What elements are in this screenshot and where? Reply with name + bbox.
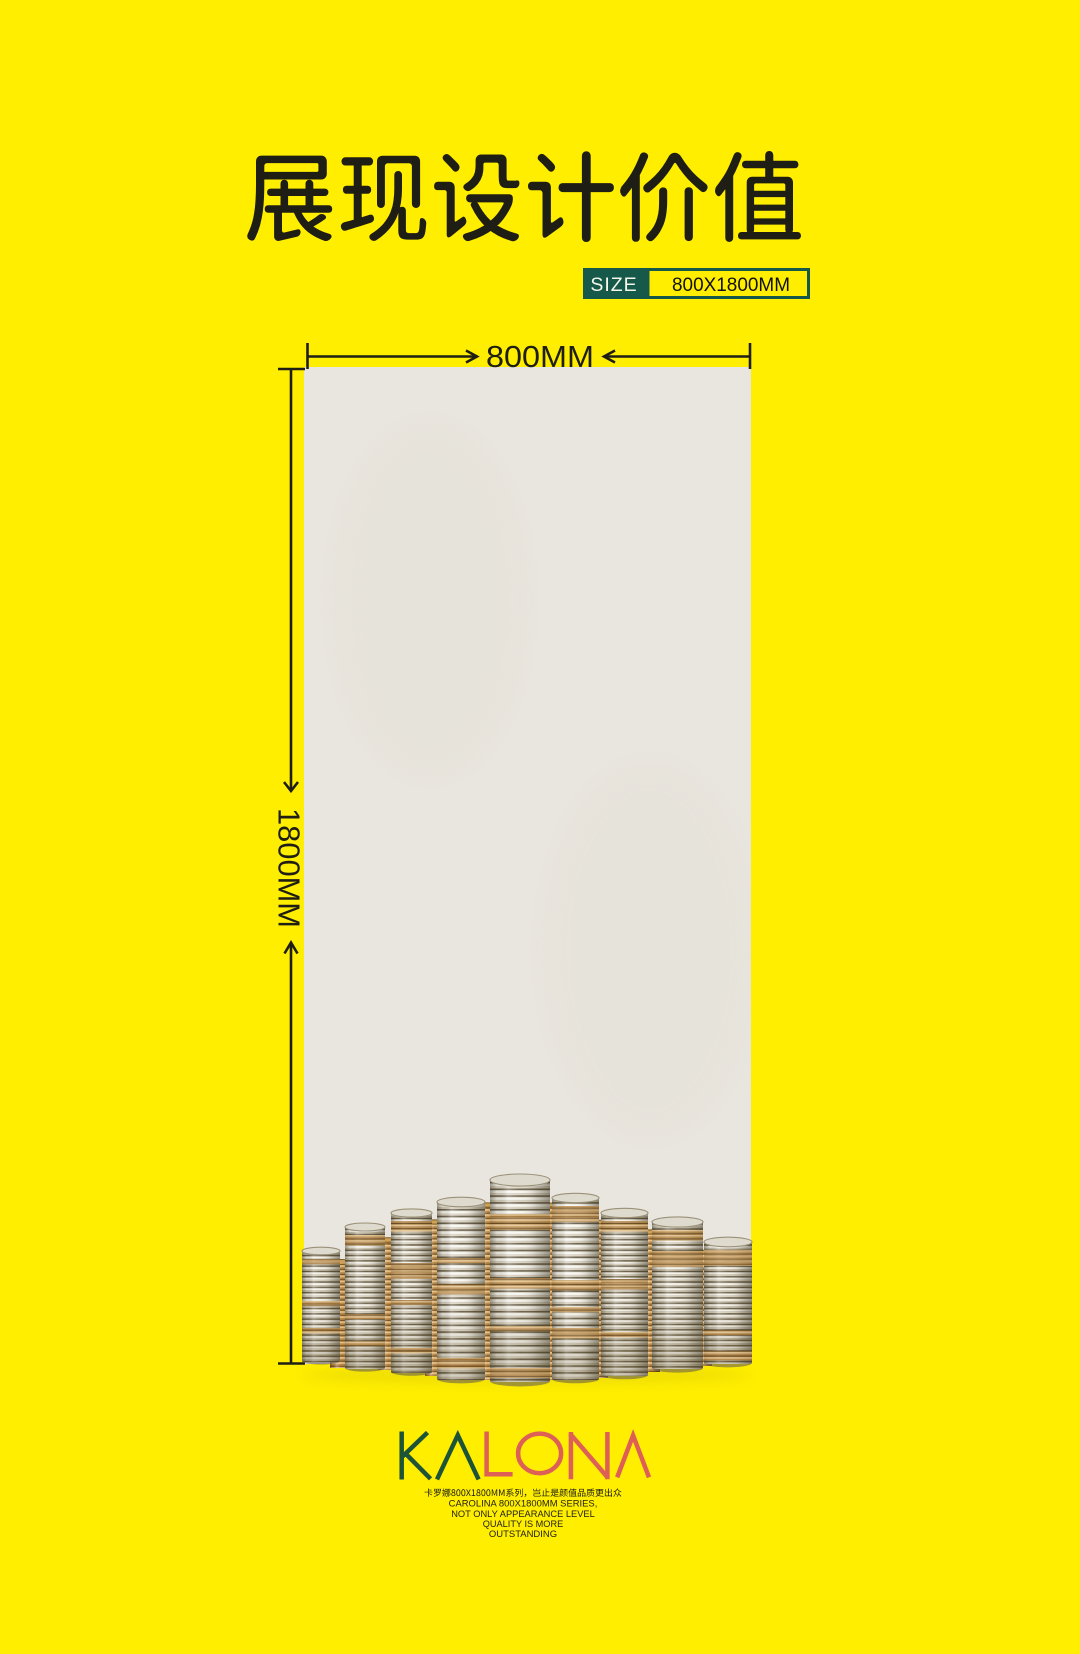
svg-text:SIZE: SIZE	[590, 274, 637, 296]
svg-text:800X1800MM: 800X1800MM	[672, 274, 790, 296]
svg-text:OUTSTANDING: OUTSTANDING	[489, 1529, 557, 1540]
svg-text:800MM: 800MM	[486, 339, 594, 374]
svg-text:1800MM: 1800MM	[272, 808, 307, 928]
